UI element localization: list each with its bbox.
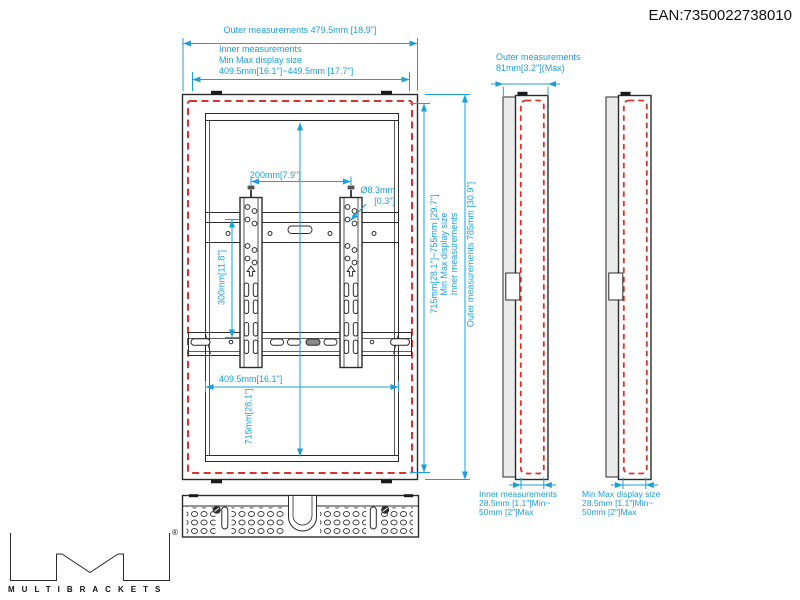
bottom-tab <box>381 480 392 484</box>
dim-text: 81mm[3.2"](Max) <box>496 63 581 74</box>
bottom-view <box>183 494 419 537</box>
logo-wordmark: MULTIBRACKETS <box>8 584 167 595</box>
dim-inner-height-label: 715mm[28.1"] <box>244 382 255 452</box>
dim-side-inner-depth-block: Inner measurements 28.5mm [1.1"]Min~ 50m… <box>479 490 557 517</box>
mount-slot <box>222 507 228 529</box>
technical-drawing-page: EAN:7350022738010 Outer measurements 479… <box>0 0 800 600</box>
dim-hole-spacing-label: 200mm[7.9"] <box>250 170 301 181</box>
dim-text: Min Max display size <box>439 188 449 320</box>
bottom-tab <box>211 480 222 484</box>
registered-trademark-icon: ® <box>172 527 178 538</box>
dim-right-inner-block: 715mm[28.1"]~755mm [29.7"] Min Max displ… <box>429 188 459 320</box>
multibrackets-logo <box>11 533 170 581</box>
dim-inner-width-block: Inner measurements Min Max display size … <box>219 44 353 77</box>
dim-text: 715mm[28.1"]~755mm [29.7"] <box>429 188 439 320</box>
perforation-panel <box>232 508 285 535</box>
mount-slot <box>370 507 376 529</box>
dim-text: Inner measurements <box>449 188 459 320</box>
dim-outer-width-label: Outer measurements 479.5mm [18.9"] <box>170 25 430 36</box>
side-view-left <box>503 92 548 480</box>
top-tab <box>211 91 222 95</box>
dim-text: Outer measurements <box>496 52 581 63</box>
dim-hole-dia-block: Ø8.3mm [0.3"] <box>341 185 395 206</box>
dim-rail-height-label: 300mm[11.8"] <box>217 243 228 313</box>
dim-text: [0.3"] <box>341 196 395 207</box>
ean-label: EAN:7350022738010 <box>649 7 792 24</box>
dim-text: Min Max display size <box>219 55 353 66</box>
dim-side-display-depth-block: Min Max display size 28.5mm [1.1"]Min~ 5… <box>582 490 660 517</box>
dim-right-outer-label: Outer measurements 785mm [30.9"] <box>466 175 477 335</box>
perforation-panel <box>320 508 366 535</box>
side-view-right <box>606 92 651 480</box>
top-tab <box>381 91 392 95</box>
dim-text: Inner measurements <box>219 44 353 55</box>
dim-side-depth-block: Outer measurements 81mm[3.2"](Max) <box>496 52 581 74</box>
dim-text: 409.5mm[16.1"]~449.5mm [17.7"] <box>219 66 353 77</box>
dim-text: 50mm [2"]Max <box>479 508 557 517</box>
drawing-linework <box>0 0 800 600</box>
dim-text: Ø8.3mm <box>341 185 395 196</box>
perforation-panel <box>187 508 216 535</box>
dim-text: 50mm [2"]Max <box>582 508 660 517</box>
